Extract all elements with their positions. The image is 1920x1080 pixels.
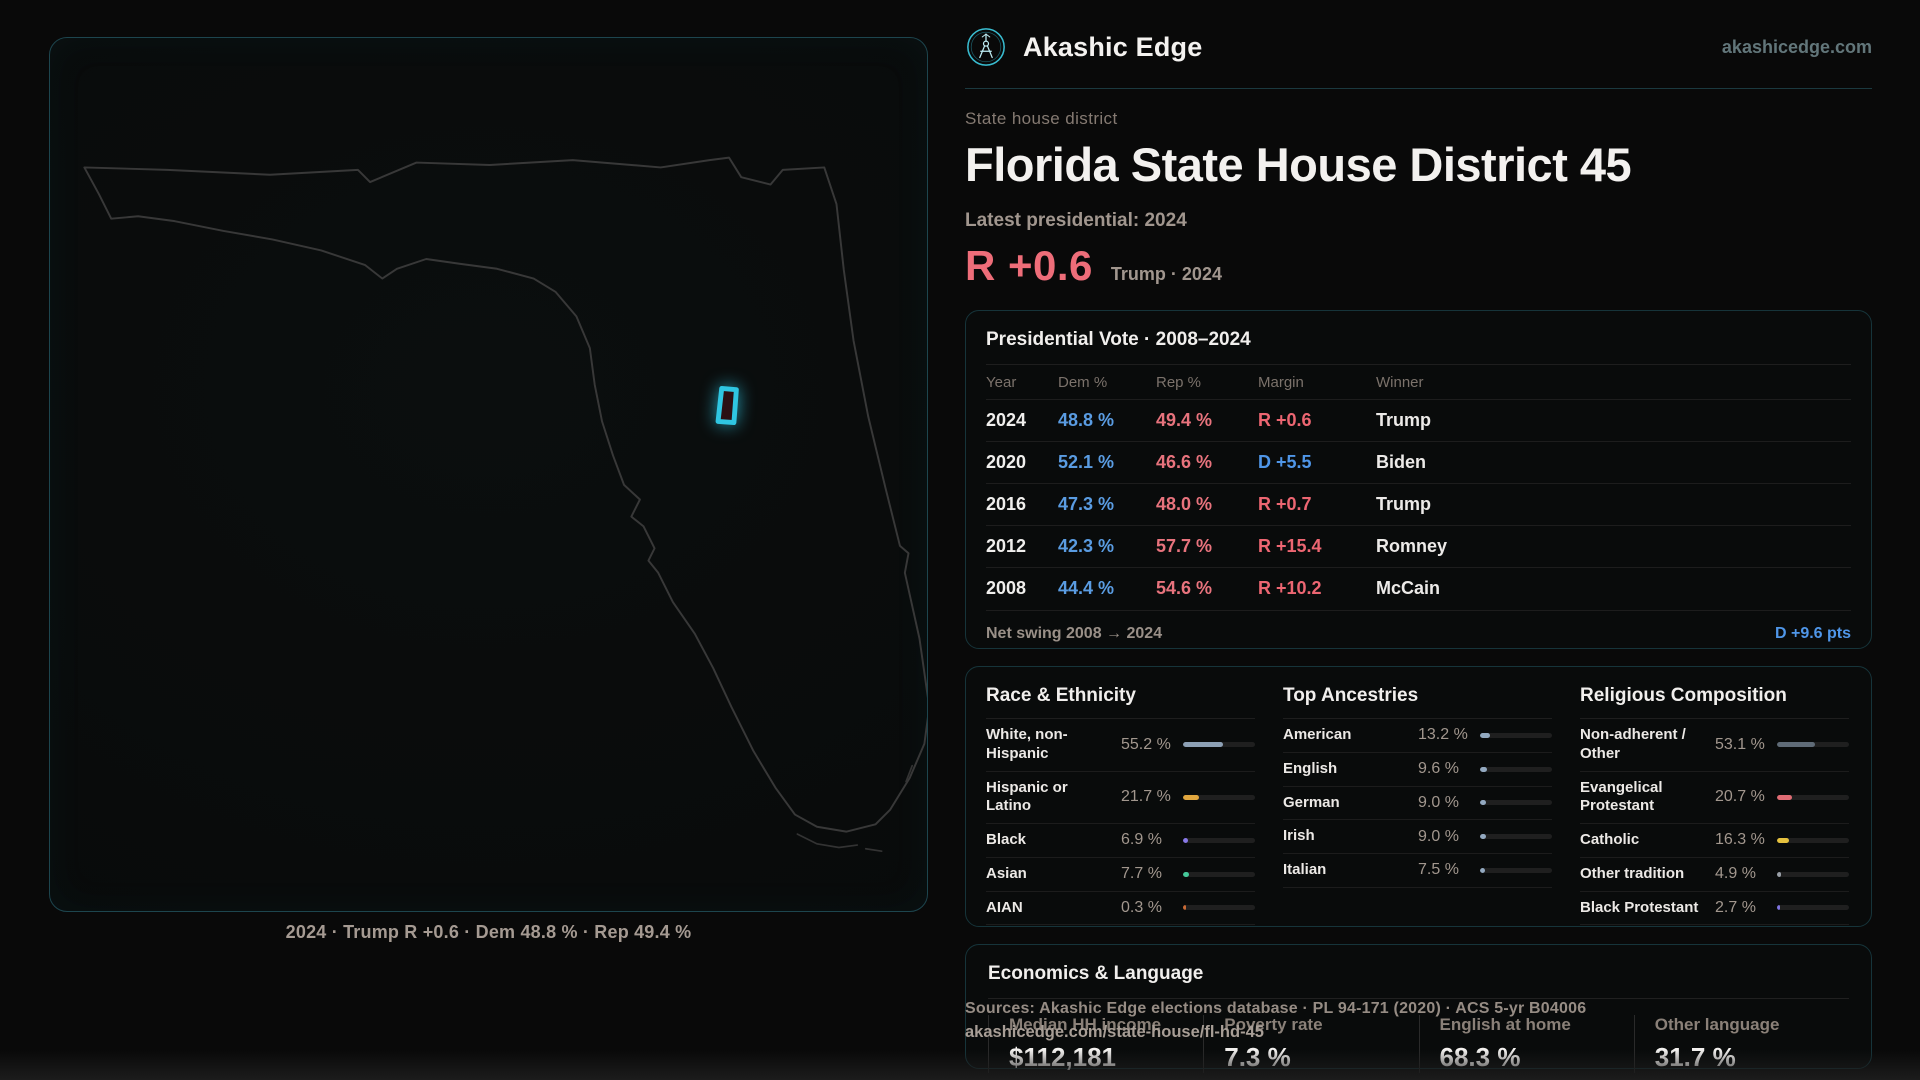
demo-bar [1183,795,1255,800]
headline-margin-detail: Trump · 2024 [1111,264,1222,285]
margin-cell: R +0.7 [1258,494,1376,515]
margin-cell: D +5.5 [1258,452,1376,473]
demo-bar [1777,795,1849,800]
list-item: Evangelical Protestant 20.7 % [1580,772,1849,825]
brand-domain-link[interactable]: akashicedge.com [1722,37,1872,58]
net-swing-row: Net swing 2008 → 2024 D +9.6 pts [986,610,1851,656]
demo-label: German [1283,794,1412,813]
rep-cell: 57.7 % [1156,536,1258,557]
religious-composition-panel: Religious Composition Non-adherent / Oth… [1580,685,1849,925]
permalink[interactable]: akashicedge.com/state-house/fl-hd-45 [965,1023,1872,1042]
year-cell: 2024 [986,410,1058,431]
demo-value: 21.7 % [1121,788,1177,806]
demo-value: 9.6 % [1418,760,1474,778]
list-item: Black 6.9 % [986,824,1255,858]
col-margin: Margin [1258,374,1376,391]
demo-bar [1183,872,1255,877]
florida-keys-outline [797,766,912,851]
list-item: Irish 9.0 % [1283,820,1552,854]
demo-bar [1480,834,1552,839]
dem-cell: 48.8 % [1058,410,1156,431]
detail-panel: Akashic Edge akashicedge.com State house… [965,0,1872,1069]
margin-cell: R +0.6 [1258,410,1376,431]
rep-cell: 48.0 % [1156,494,1258,515]
demo-label: Catholic [1580,831,1709,850]
header-divider [965,88,1872,89]
map-caption: 2024 · Trump R +0.6 · Dem 48.8 % · Rep 4… [49,922,928,943]
stat-value: 68.3 % [1440,1042,1634,1073]
dem-cell: 47.3 % [1058,494,1156,515]
demo-value: 6.9 % [1121,831,1177,849]
top-ancestries-panel: Top Ancestries American 13.2 % English 9… [1283,685,1552,925]
stat-value: 7.3 % [1224,1042,1418,1073]
list-item: Hispanic or Latino 21.7 % [986,772,1255,825]
table-row: 2024 48.8 % 49.4 % R +0.6 Trump [986,399,1851,441]
col-year: Year [986,374,1058,391]
demo-value: 9.0 % [1418,828,1474,846]
demo-label: Italian [1283,861,1412,880]
divider [988,998,1849,999]
demo-label: Evangelical Protestant [1580,779,1709,817]
table-row: 2016 47.3 % 48.0 % R +0.7 Trump [986,483,1851,525]
demo-label: Black [986,831,1115,850]
col-dem: Dem % [1058,374,1156,391]
district-map-card [49,37,928,912]
list-item: Asian 7.7 % [986,858,1255,892]
panel-title: Top Ancestries [1283,685,1552,707]
economics-language-card: Economics & Language Median HH income $1… [965,944,1872,1069]
list-item: Other tradition 4.9 % [1580,858,1849,892]
rep-cell: 54.6 % [1156,578,1258,599]
district-type-kicker: State house district [965,109,1872,129]
page-title: Florida State House District 45 [965,137,1872,192]
demographics-card: Race & Ethnicity White, non-Hispanic 55.… [965,666,1872,927]
brand-logo-icon [965,26,1007,68]
list-item: Catholic 16.3 % [1580,824,1849,858]
list-item: White, non-Hispanic 55.2 % [986,719,1255,772]
florida-map [50,38,927,911]
latest-presidential-label: Latest presidential: 2024 [965,210,1872,232]
year-cell: 2016 [986,494,1058,515]
demo-value: 0.3 % [1121,899,1177,917]
headline-margin-row: R +0.6 Trump · 2024 [965,242,1872,290]
demo-label: AIAN [986,899,1115,918]
demo-bar [1480,800,1552,805]
margin-cell: R +10.2 [1258,578,1376,599]
demo-bar [1480,733,1552,738]
dem-cell: 42.3 % [1058,536,1156,557]
table-row: 2008 44.4 % 54.6 % R +10.2 McCain [986,567,1851,609]
list-item: AIAN 0.3 % [986,892,1255,926]
demo-value: 2.7 % [1715,899,1771,917]
list-item: English 9.6 % [1283,753,1552,787]
demo-value: 13.2 % [1418,726,1474,744]
demo-value: 9.0 % [1418,794,1474,812]
demo-value: 7.5 % [1418,861,1474,879]
demo-label: Non-adherent / Other [1580,726,1709,764]
table-row: 2020 52.1 % 46.6 % D +5.5 Biden [986,441,1851,483]
list-item: German 9.0 % [1283,787,1552,821]
demo-label: Irish [1283,827,1412,846]
demo-bar [1777,742,1849,747]
col-winner: Winner [1376,374,1851,391]
winner-cell: Romney [1376,536,1851,557]
demo-value: 7.7 % [1121,865,1177,883]
year-cell: 2012 [986,536,1058,557]
col-rep: Rep % [1156,374,1258,391]
list-item: Non-adherent / Other 53.1 % [1580,719,1849,772]
district-45-shape[interactable] [718,388,736,422]
demo-bar [1183,838,1255,843]
demo-bar [1183,905,1255,910]
dem-cell: 44.4 % [1058,578,1156,599]
table-row: 2012 42.3 % 57.7 % R +15.4 Romney [986,525,1851,567]
list-item: American 13.2 % [1283,719,1552,753]
demo-bar [1183,742,1255,747]
demo-label: Black Protestant [1580,899,1709,918]
demo-bar [1480,767,1552,772]
demo-label: Other tradition [1580,865,1709,884]
demo-value: 16.3 % [1715,831,1771,849]
brand-header: Akashic Edge akashicedge.com [965,0,1872,68]
vote-card-title: Presidential Vote · 2008–2024 [986,329,1851,351]
margin-cell: R +15.4 [1258,536,1376,557]
presidential-vote-card: Presidential Vote · 2008–2024 Year Dem %… [965,310,1872,649]
demo-label: Hispanic or Latino [986,779,1115,817]
net-swing-label: Net swing 2008 → 2024 [986,625,1162,643]
rep-cell: 46.6 % [1156,452,1258,473]
demo-label: American [1283,726,1412,745]
demo-label: Asian [986,865,1115,884]
demo-value: 53.1 % [1715,736,1771,754]
list-item: Italian 7.5 % [1283,854,1552,888]
stat-value: 31.7 % [1655,1042,1849,1073]
demo-bar [1777,838,1849,843]
rep-cell: 49.4 % [1156,410,1258,431]
race-ethnicity-panel: Race & Ethnicity White, non-Hispanic 55.… [986,685,1255,925]
florida-outline [84,158,927,832]
demo-label: English [1283,760,1412,779]
brand-name: Akashic Edge [1023,32,1202,63]
winner-cell: Trump [1376,410,1851,431]
panel-title: Race & Ethnicity [986,685,1255,707]
year-cell: 2020 [986,452,1058,473]
demo-bar [1777,872,1849,877]
demo-bar [1777,905,1849,910]
winner-cell: Biden [1376,452,1851,473]
demo-value: 4.9 % [1715,865,1771,883]
headline-margin-value: R +0.6 [965,242,1093,290]
stat-value: $112,181 [1009,1042,1203,1073]
demo-value: 55.2 % [1121,736,1177,754]
demo-value: 20.7 % [1715,788,1771,806]
panel-title: Religious Composition [1580,685,1849,707]
demo-label: White, non-Hispanic [986,726,1115,764]
year-cell: 2008 [986,578,1058,599]
vote-table-header: Year Dem % Rep % Margin Winner [986,365,1851,399]
econ-card-title: Economics & Language [988,963,1849,985]
dem-cell: 52.1 % [1058,452,1156,473]
list-item: Black Protestant 2.7 % [1580,892,1849,926]
winner-cell: McCain [1376,578,1851,599]
winner-cell: Trump [1376,494,1851,515]
demo-bar [1480,868,1552,873]
net-swing-value: D +9.6 pts [1775,625,1851,643]
